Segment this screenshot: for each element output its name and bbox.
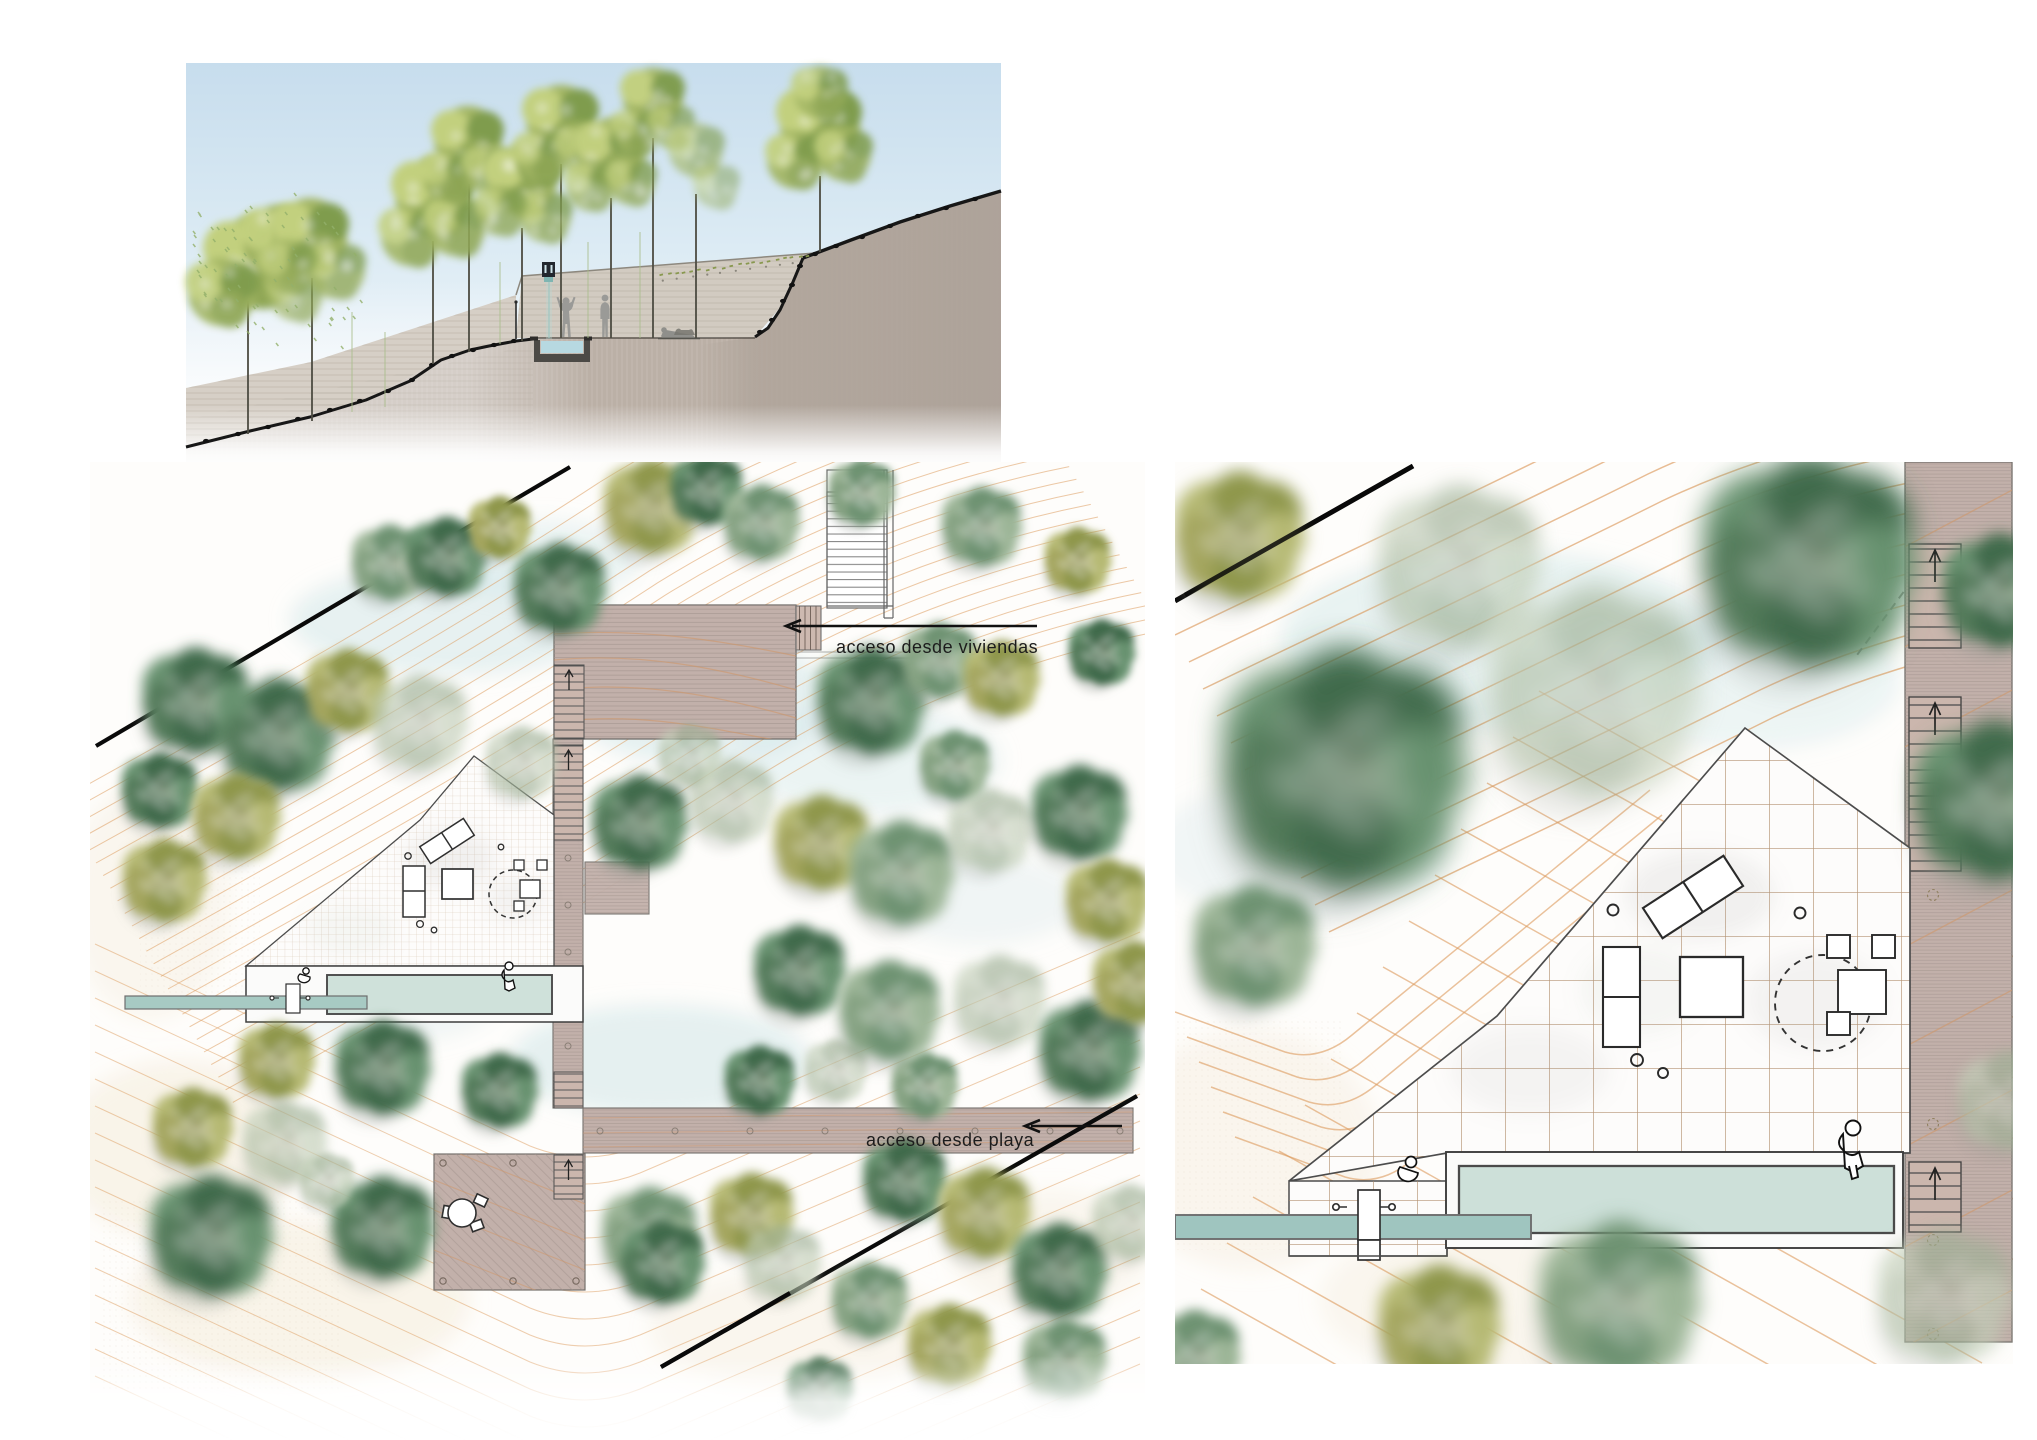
svg-text:acceso desde playa: acceso desde playa bbox=[866, 1130, 1035, 1150]
svg-text:acceso desde viviendas: acceso desde viviendas bbox=[836, 637, 1038, 657]
